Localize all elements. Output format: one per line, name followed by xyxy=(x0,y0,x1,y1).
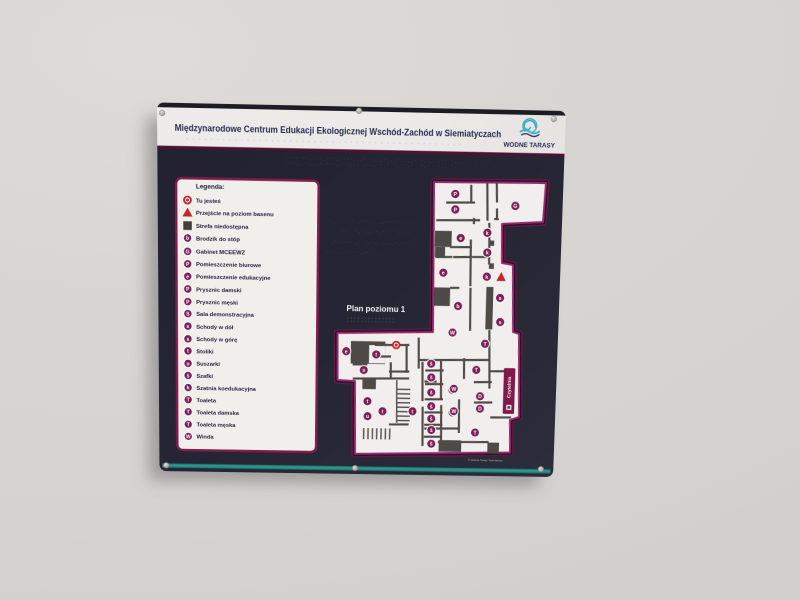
svg-text:s: s xyxy=(499,320,502,326)
svg-text:D: D xyxy=(478,394,482,400)
svg-text:Strefa niedostępna: Strefa niedostępna xyxy=(196,224,249,231)
svg-text:G: G xyxy=(186,249,190,255)
svg-text:š: š xyxy=(430,442,433,448)
svg-text:š: š xyxy=(430,376,433,382)
svg-text:Czytelnia: Czytelnia xyxy=(507,377,513,399)
svg-text:Pomieszczenie biurowe: Pomieszczenie biurowe xyxy=(196,262,262,269)
svg-text:s: s xyxy=(187,337,190,343)
svg-text:Prysznic męski: Prysznic męski xyxy=(196,300,238,307)
svg-text:Legenda:: Legenda: xyxy=(196,184,225,191)
svg-text:e: e xyxy=(442,271,445,277)
svg-text:Brodzik do stóp: Brodzik do stóp xyxy=(196,236,240,243)
svg-text:W: W xyxy=(450,331,456,337)
svg-text:© Wodne Tarasy Siemiatycze: © Wodne Tarasy Siemiatycze xyxy=(468,458,503,462)
svg-text:P: P xyxy=(186,287,190,293)
svg-text:W: W xyxy=(451,387,457,393)
svg-text:Stoliki: Stoliki xyxy=(196,349,214,355)
svg-text:š: š xyxy=(430,428,433,434)
svg-text:Toaleta damska: Toaleta damska xyxy=(196,410,239,416)
svg-text:š: š xyxy=(430,404,433,410)
svg-text:Plan poziomu 1: Plan poziomu 1 xyxy=(346,303,405,314)
svg-text:Tu jesteś: Tu jesteś xyxy=(196,198,222,204)
svg-text:P: P xyxy=(186,262,190,268)
svg-text:š: š xyxy=(187,374,190,380)
svg-text:Suszarki: Suszarki xyxy=(196,362,220,368)
svg-text:P: P xyxy=(186,300,190,306)
svg-text:s: s xyxy=(186,324,189,330)
svg-text:š: š xyxy=(430,417,433,423)
svg-text:t: t xyxy=(187,349,189,355)
svg-text:e: e xyxy=(186,274,189,280)
svg-text:s: s xyxy=(498,296,501,302)
svg-text:Toaleta męska: Toaleta męska xyxy=(197,423,237,429)
svg-text:t: t xyxy=(367,399,369,405)
svg-text:t: t xyxy=(412,409,414,415)
svg-text:Prysznic damski: Prysznic damski xyxy=(196,287,242,294)
svg-text:s: s xyxy=(362,368,365,374)
svg-text:š: š xyxy=(430,362,433,368)
svg-text:e: e xyxy=(345,349,348,355)
svg-text:WODNE TARASY: WODNE TARASY xyxy=(503,142,555,150)
svg-text:Schody w dół: Schody w dół xyxy=(196,325,233,331)
svg-text:P: P xyxy=(453,208,457,214)
svg-text:Schody w górę: Schody w górę xyxy=(196,337,238,343)
svg-text:D: D xyxy=(478,407,482,413)
svg-text:Toaleta: Toaleta xyxy=(196,398,216,404)
svg-text:Szafki: Szafki xyxy=(196,374,213,380)
svg-text:Gabinet MCEEWZ: Gabinet MCEEWZ xyxy=(196,250,245,257)
svg-text:t: t xyxy=(375,353,377,359)
svg-text:Szatnia koedukacyjna: Szatnia koedukacyjna xyxy=(196,386,256,393)
svg-text:G: G xyxy=(513,204,517,210)
svg-text:P: P xyxy=(453,192,457,198)
svg-text:u: u xyxy=(186,361,189,367)
svg-text:Winda: Winda xyxy=(197,435,215,441)
svg-text:š: š xyxy=(430,391,433,397)
svg-text:e: e xyxy=(459,236,462,242)
svg-text:t: t xyxy=(382,409,384,415)
svg-text:W: W xyxy=(451,409,457,415)
svg-text:S: S xyxy=(186,312,190,318)
svg-text:k: k xyxy=(187,386,190,392)
svg-text:Sala demonstracyjna: Sala demonstracyjna xyxy=(196,312,254,319)
